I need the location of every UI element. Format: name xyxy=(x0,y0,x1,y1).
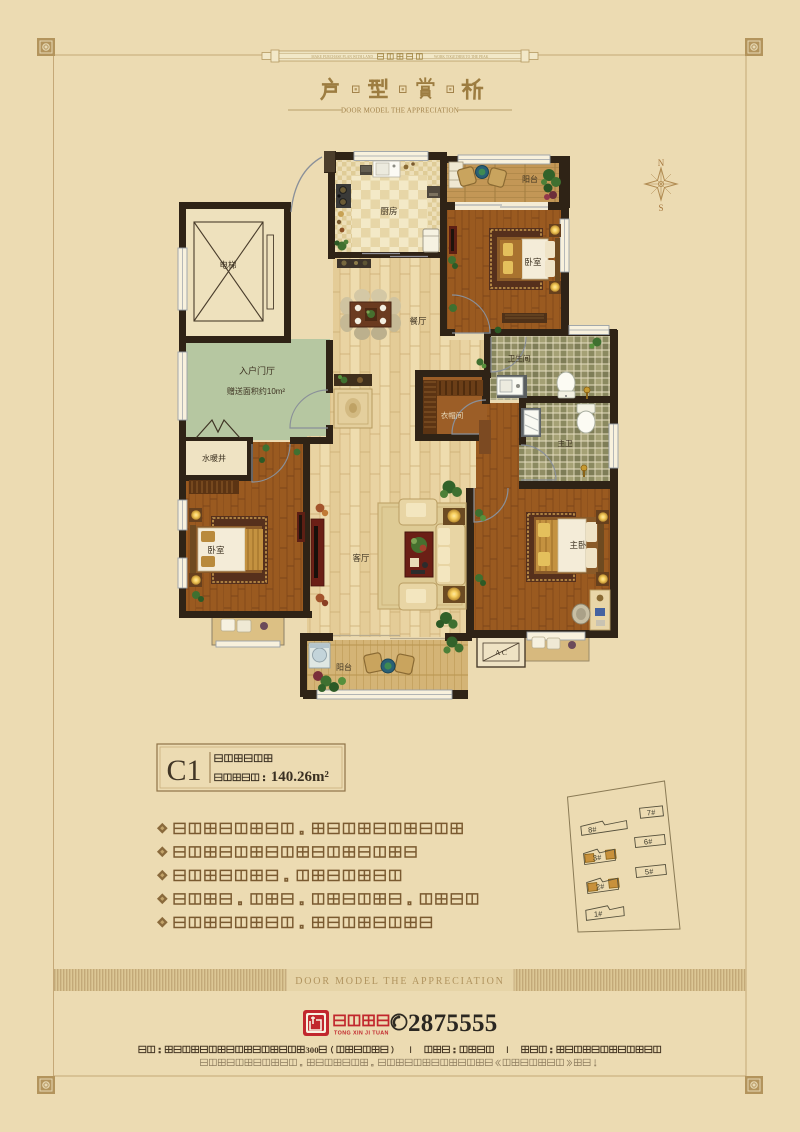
svg-text:入户门厅: 入户门厅 xyxy=(239,365,275,376)
svg-text:S: S xyxy=(658,203,663,213)
svg-text:餐厅: 餐厅 xyxy=(409,316,427,326)
svg-text:N: N xyxy=(658,158,665,168)
svg-text:衣帽间: 衣帽间 xyxy=(441,410,464,420)
svg-text:卧室: 卧室 xyxy=(524,257,542,267)
svg-text:厨房: 厨房 xyxy=(380,206,397,216)
svg-text:DOOR MODEL THE APPRECIATION: DOOR MODEL THE APPRECIATION xyxy=(295,976,504,987)
svg-text:2875555: 2875555 xyxy=(408,1010,498,1037)
svg-text:C1: C1 xyxy=(166,754,201,787)
svg-text:客厅: 客厅 xyxy=(352,553,370,563)
svg-text:阳台: 阳台 xyxy=(522,174,538,184)
svg-text:卧室: 卧室 xyxy=(207,545,225,555)
svg-text:1#: 1# xyxy=(594,909,604,919)
svg-text:阳台: 阳台 xyxy=(336,662,352,672)
svg-text:DOOR MODEL THE APPRECIATION: DOOR MODEL THE APPRECIATION xyxy=(341,107,459,115)
svg-text:WORK TOGETHER TO THE PEAK: WORK TOGETHER TO THE PEAK xyxy=(434,55,489,59)
svg-text:A C: A C xyxy=(495,648,507,657)
svg-text:水暖井: 水暖井 xyxy=(202,453,226,463)
svg-text:MAKE PURCHASE PLAN WITH LAND: MAKE PURCHASE PLAN WITH LAND xyxy=(311,55,373,59)
svg-text:主卧: 主卧 xyxy=(569,540,587,550)
svg-text:TONG XIN JI TUAN: TONG XIN JI TUAN xyxy=(334,1031,389,1037)
svg-text:卫生间: 卫生间 xyxy=(508,353,531,363)
svg-text:电梯: 电梯 xyxy=(219,260,237,270)
svg-text:300: 300 xyxy=(305,1045,319,1055)
svg-text:赠送面积约10m²: 赠送面积约10m² xyxy=(227,386,286,396)
svg-text:140.26m²: 140.26m² xyxy=(271,769,330,785)
svg-text:主卫: 主卫 xyxy=(558,438,573,448)
